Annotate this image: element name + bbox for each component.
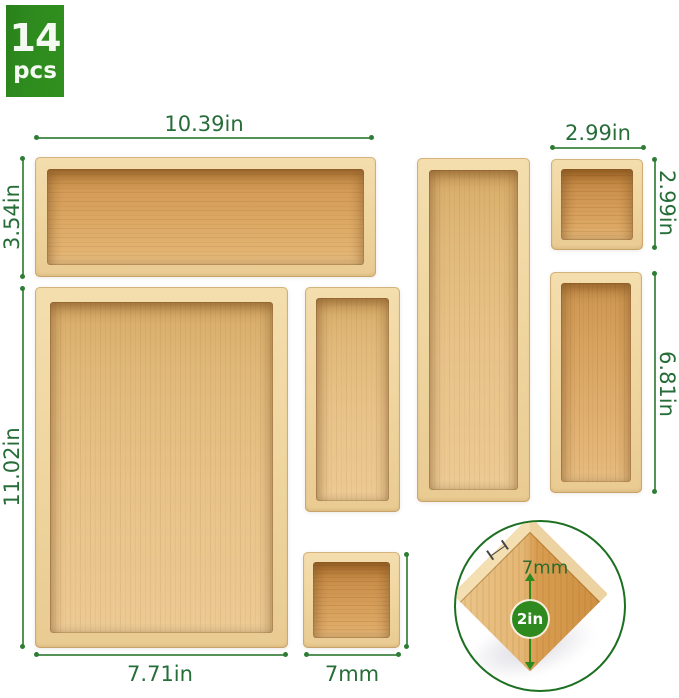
- dimension-line-small-square-width: [305, 654, 400, 656]
- tray-large-interior: [50, 302, 273, 633]
- piece-count-unit: pcs: [13, 59, 57, 83]
- dimension-line-top-right-width: [551, 147, 645, 149]
- label-top-tray-width: 10.39in: [164, 112, 243, 136]
- piece-count-number: 14: [10, 19, 61, 57]
- tray-square-top-right: [551, 159, 643, 250]
- tray-small-square-interior: [313, 562, 390, 638]
- tray-medium-right: [550, 272, 642, 493]
- tray-medium-vertical-interior: [316, 298, 389, 501]
- label-right-tray-height: 6.81in: [655, 351, 679, 417]
- label-top-tray-height: 3.54in: [0, 184, 24, 250]
- dimension-line-large-tray-width: [35, 654, 287, 656]
- corner-detail-inset: 7mm 2in: [454, 520, 626, 692]
- tray-small-square: [303, 552, 400, 648]
- dimension-line-small-square-height: [406, 553, 408, 648]
- tray-long-vertical: [417, 158, 530, 502]
- label-small-square-width: 7mm: [325, 662, 379, 686]
- tray-top-wide-interior: [47, 169, 364, 265]
- label-top-right-width: 2.99in: [565, 121, 631, 145]
- label-large-tray-height: 11.02in: [0, 427, 24, 506]
- label-large-tray-width: 7.71in: [127, 662, 193, 686]
- tray-long-vertical-interior: [429, 170, 518, 490]
- label-tray-depth: 2in: [517, 610, 543, 628]
- tray-medium-vertical: [305, 287, 400, 512]
- depth-arrow-down-icon: [525, 662, 535, 670]
- depth-badge: 2in: [512, 601, 548, 637]
- tray-large: [35, 287, 288, 648]
- tray-medium-right-interior: [561, 283, 631, 482]
- dimension-line-top-tray-width: [35, 137, 373, 139]
- tray-square-top-right-interior: [561, 169, 633, 240]
- depth-arrow-up-icon: [525, 573, 535, 581]
- label-top-right-height: 2.99in: [655, 170, 679, 236]
- piece-count-badge: 14 pcs: [6, 5, 64, 97]
- tray-top-wide: [35, 157, 376, 277]
- product-dimension-diagram: 14 pcs 10.39in 3.54in 11.02in 7.71in 7mm…: [0, 0, 679, 698]
